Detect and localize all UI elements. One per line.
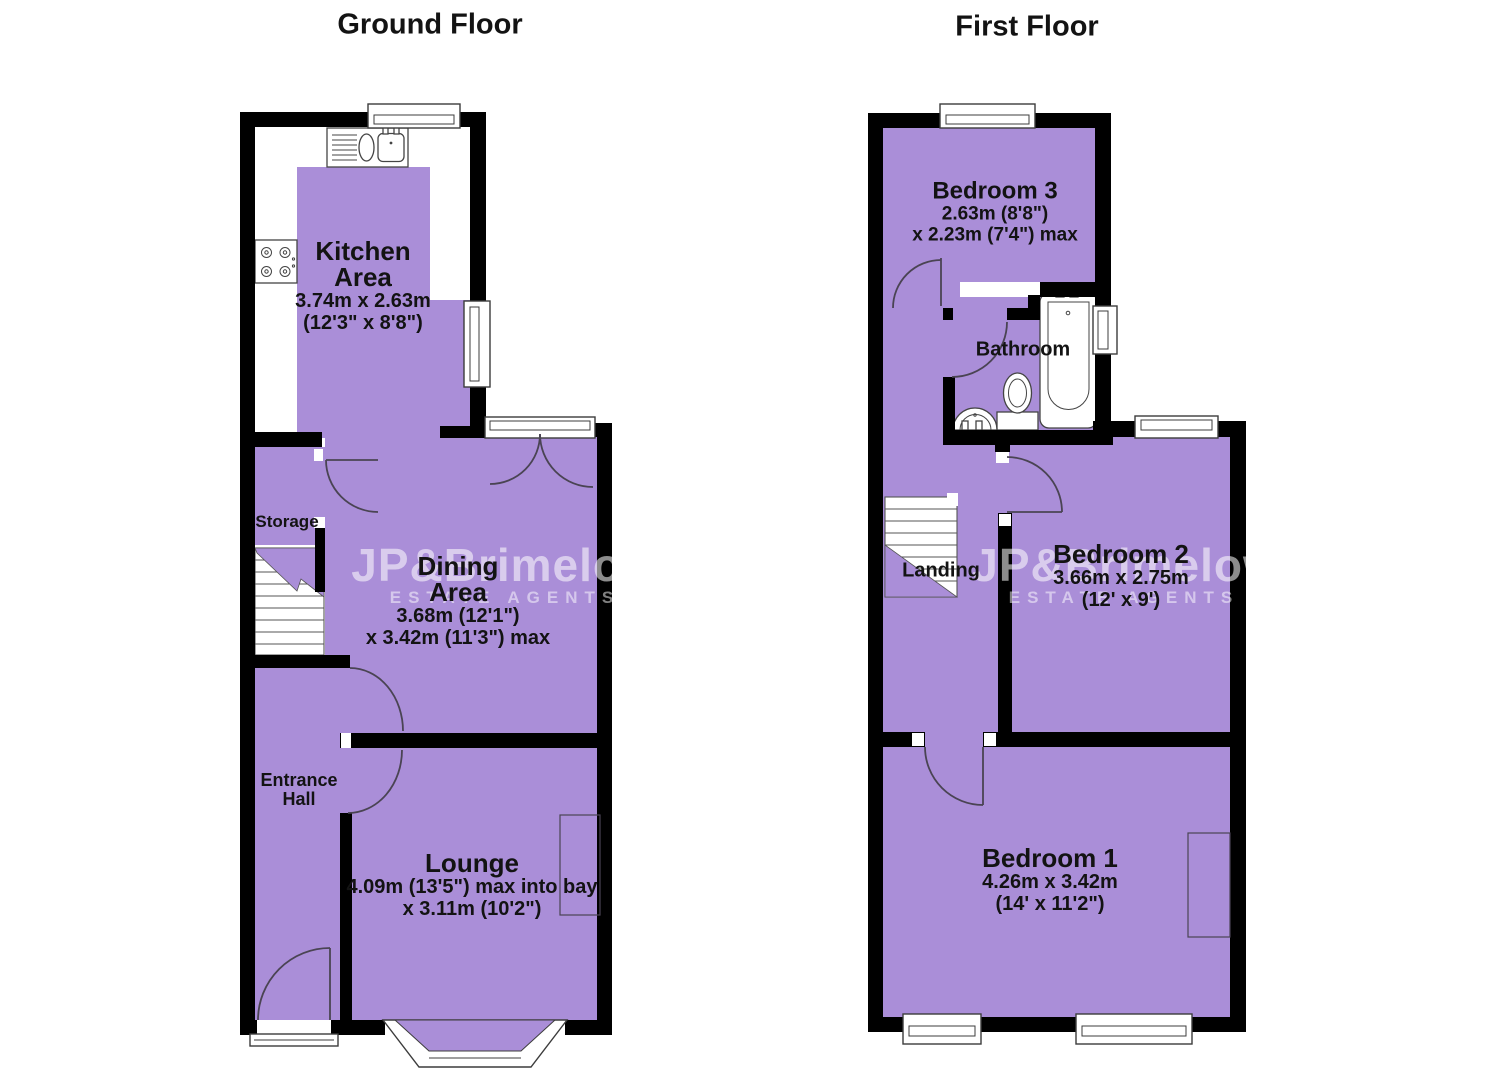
- bedroom3-name: Bedroom 3: [912, 179, 1078, 204]
- dining-name-line1: Dining: [366, 553, 550, 579]
- entrance-hall-line1: Entrance: [260, 771, 337, 790]
- bedroom2-label: Bedroom 2 3.66m x 2.75m (12' x 9'): [1053, 541, 1189, 611]
- kitchen-label: Kitchen Area 3.74m x 2.63m (12'3" x 8'8"…: [295, 238, 431, 334]
- storage-label: Storage: [255, 512, 318, 532]
- kitchen-name-line2: Area: [295, 264, 431, 290]
- staircase-ground-icon: [255, 548, 324, 655]
- floorplan-drawing: [0, 0, 1485, 1080]
- dining-label: Dining Area 3.68m (12'1") x 3.42m (11'3"…: [366, 553, 550, 649]
- kitchen-name-line1: Kitchen: [295, 238, 431, 264]
- entrance-hall-line2: Hall: [260, 790, 337, 809]
- entrance-hall-label: Entrance Hall: [260, 771, 337, 809]
- kitchen-sink-icon: [327, 127, 408, 167]
- kitchen-dim2: (12'3" x 8'8"): [295, 312, 431, 334]
- dining-name-line2: Area: [366, 579, 550, 605]
- ground-floor-title: Ground Floor: [337, 9, 522, 42]
- lounge-label: Lounge 4.09m (13'5") max into bay x 3.11…: [346, 850, 597, 920]
- bedroom3-dim2: x 2.23m (7'4") max: [912, 225, 1078, 246]
- landing-label: Landing: [902, 560, 980, 583]
- dining-dim1: 3.68m (12'1"): [366, 605, 550, 627]
- bedroom1-dim2: (14' x 11'2"): [982, 893, 1118, 915]
- bedroom1-dim1: 4.26m x 3.42m: [982, 871, 1118, 893]
- bedroom2-dim2: (12' x 9'): [1053, 589, 1189, 611]
- first-floor-title: First Floor: [955, 11, 1098, 44]
- bedroom1-label: Bedroom 1 4.26m x 3.42m (14' x 11'2"): [982, 845, 1118, 915]
- lounge-dim2: x 3.11m (10'2"): [346, 898, 597, 920]
- lounge-dim1: 4.09m (13'5") max into bay: [346, 876, 597, 898]
- floorplan-page: JP&Brimelow ESTATE AGENTS JP&Brimelow ES…: [0, 0, 1485, 1080]
- lounge-name: Lounge: [346, 850, 597, 876]
- bedroom3-label: Bedroom 3 2.63m (8'8") x 2.23m (7'4") ma…: [912, 179, 1078, 246]
- bay-window-icon: [383, 1020, 567, 1067]
- front-door-sill: [250, 1020, 338, 1046]
- bedroom2-dim1: 3.66m x 2.75m: [1053, 567, 1189, 589]
- kitchen-dim1: 3.74m x 2.63m: [295, 290, 431, 312]
- bedroom3-dim1: 2.63m (8'8"): [912, 204, 1078, 225]
- hob-icon: [255, 240, 297, 283]
- bathroom-label: Bathroom: [976, 339, 1070, 362]
- bedroom1-name: Bedroom 1: [982, 845, 1118, 871]
- bedroom2-name: Bedroom 2: [1053, 541, 1189, 567]
- dining-dim2: x 3.42m (11'3") max: [366, 627, 550, 649]
